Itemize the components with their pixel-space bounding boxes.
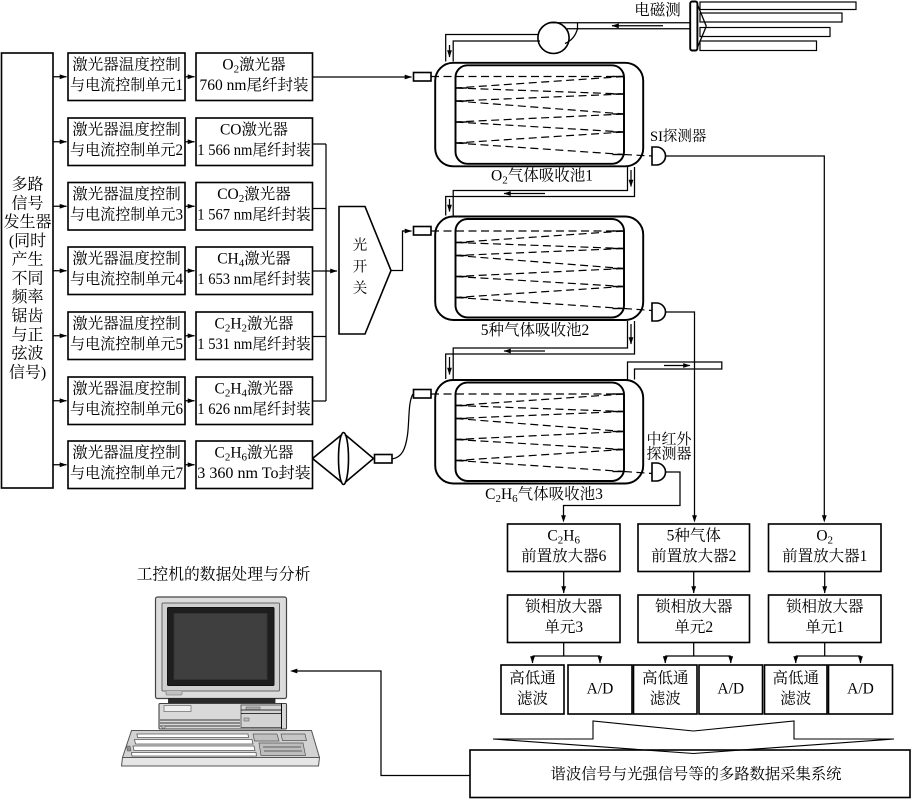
svg-text:锁相放大器: 锁相放大器 (786, 597, 864, 616)
svg-text:CO激光器: CO激光器 (220, 121, 289, 139)
svg-text:前置放大器6: 前置放大器6 (521, 547, 607, 565)
svg-text:发生器: 发生器 (3, 213, 51, 231)
svg-text:5种气体: 5种气体 (667, 527, 722, 545)
svg-text:O2​激光器: O2​激光器 (222, 56, 286, 75)
svg-text:1 567 nm尾纤封装: 1 567 nm尾纤封装 (197, 206, 311, 224)
svg-text:谐波信号与光强信号等的多路数据采集系统: 谐波信号与光强信号等的多路数据采集系统 (551, 765, 842, 783)
svg-text:信号: 信号 (11, 194, 43, 212)
svg-text:A/D: A/D (717, 681, 744, 698)
svg-text:开: 开 (353, 258, 368, 275)
svg-text:锁相放大器: 锁相放大器 (655, 597, 733, 616)
svg-text:高低通: 高低通 (772, 668, 819, 687)
svg-text:5种气体吸收池2: 5种气体吸收池2 (481, 321, 590, 339)
svg-text:与电流控制单元6: 与电流控制单元6 (70, 400, 183, 418)
svg-text:C2​H6​气体吸收池3: C2​H6​气体吸收池3 (485, 485, 603, 504)
svg-text:激光器温度控制: 激光器温度控制 (72, 121, 181, 139)
svg-text:1 531 nm尾纤封装: 1 531 nm尾纤封装 (197, 335, 311, 353)
svg-text:CH4​激光器: CH4​激光器 (217, 250, 291, 269)
svg-text:CO2​激光器: CO2​激光器 (217, 185, 291, 204)
svg-text:1 626 nm尾纤封装: 1 626 nm尾纤封装 (197, 400, 311, 418)
svg-text:信号): 信号) (9, 363, 46, 381)
svg-text:A/D: A/D (587, 681, 614, 698)
svg-text:单元2: 单元2 (674, 618, 713, 636)
svg-text:激光器温度控制: 激光器温度控制 (72, 56, 181, 74)
svg-text:SI探测器: SI探测器 (650, 127, 707, 145)
svg-text:激光器温度控制: 激光器温度控制 (72, 444, 181, 462)
svg-text:弦波: 弦波 (11, 345, 43, 363)
svg-text:前置放大器2: 前置放大器2 (651, 547, 736, 565)
svg-text:激光器温度控制: 激光器温度控制 (72, 250, 181, 268)
svg-text:高低通: 高低通 (642, 668, 689, 687)
svg-text:激光器温度控制: 激光器温度控制 (72, 185, 181, 203)
svg-text:激光器温度控制: 激光器温度控制 (72, 380, 181, 398)
svg-text:电磁测: 电磁测 (634, 1, 681, 19)
svg-text:不同: 不同 (11, 269, 43, 287)
svg-text:前置放大器1: 前置放大器1 (782, 547, 867, 565)
svg-text:1 653 nm尾纤封装: 1 653 nm尾纤封装 (197, 270, 311, 288)
svg-text:760 nm尾纤封装: 760 nm尾纤封装 (200, 76, 309, 94)
svg-text:1 566 nm尾纤封装: 1 566 nm尾纤封装 (197, 141, 311, 159)
svg-text:与电流控制单元7: 与电流控制单元7 (70, 464, 183, 482)
svg-text:与电流控制单元5: 与电流控制单元5 (70, 335, 183, 353)
svg-text:单元1: 单元1 (805, 618, 844, 636)
svg-text:与电流控制单元3: 与电流控制单元3 (70, 206, 183, 224)
svg-text:3 360 nm To封装: 3 360 nm To封装 (197, 464, 311, 482)
svg-text:关: 关 (353, 280, 368, 297)
svg-text:工控机的数据处理与分析: 工控机的数据处理与分析 (137, 566, 311, 584)
svg-text:滤波: 滤波 (780, 690, 812, 708)
svg-text:多路: 多路 (11, 176, 43, 194)
svg-text:产生: 产生 (11, 251, 43, 269)
svg-text:滤波: 滤波 (650, 690, 682, 708)
svg-text:光: 光 (353, 237, 368, 254)
svg-text:(同时: (同时 (9, 232, 46, 250)
svg-text:与电流控制单元1: 与电流控制单元1 (70, 76, 183, 94)
svg-text:单元3: 单元3 (544, 618, 583, 636)
svg-text:中红外: 中红外 (646, 431, 692, 448)
svg-text:锯齿: 锯齿 (11, 307, 43, 325)
svg-text:激光器温度控制: 激光器温度控制 (72, 315, 181, 333)
svg-text:锁相放大器: 锁相放大器 (525, 597, 603, 616)
svg-text:高低通: 高低通 (509, 668, 556, 687)
svg-text:频率: 频率 (11, 288, 43, 306)
svg-text:探测器: 探测器 (646, 444, 691, 462)
svg-text:与电流控制单元2: 与电流控制单元2 (70, 141, 183, 159)
svg-text:滤波: 滤波 (517, 690, 549, 708)
svg-text:与电流控制单元4: 与电流控制单元4 (70, 270, 183, 288)
svg-text:A/D: A/D (847, 681, 874, 698)
svg-text:与正: 与正 (11, 326, 43, 344)
